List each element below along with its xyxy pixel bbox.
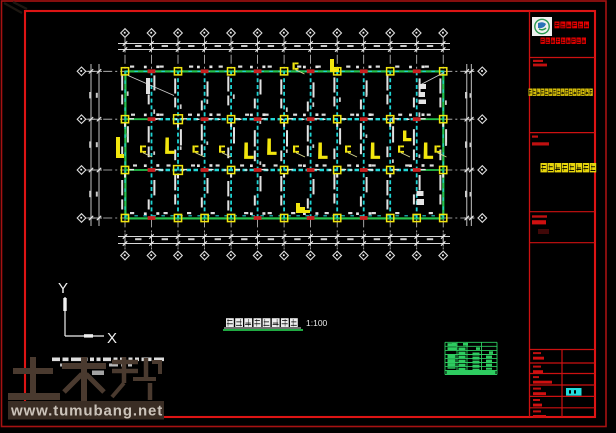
svg-text:Y: Y [58,280,68,297]
svg-text:X: X [107,330,117,347]
svg-text:www.tumubang.net: www.tumubang.net [10,403,163,420]
svg-text:1:100: 1:100 [306,318,328,328]
